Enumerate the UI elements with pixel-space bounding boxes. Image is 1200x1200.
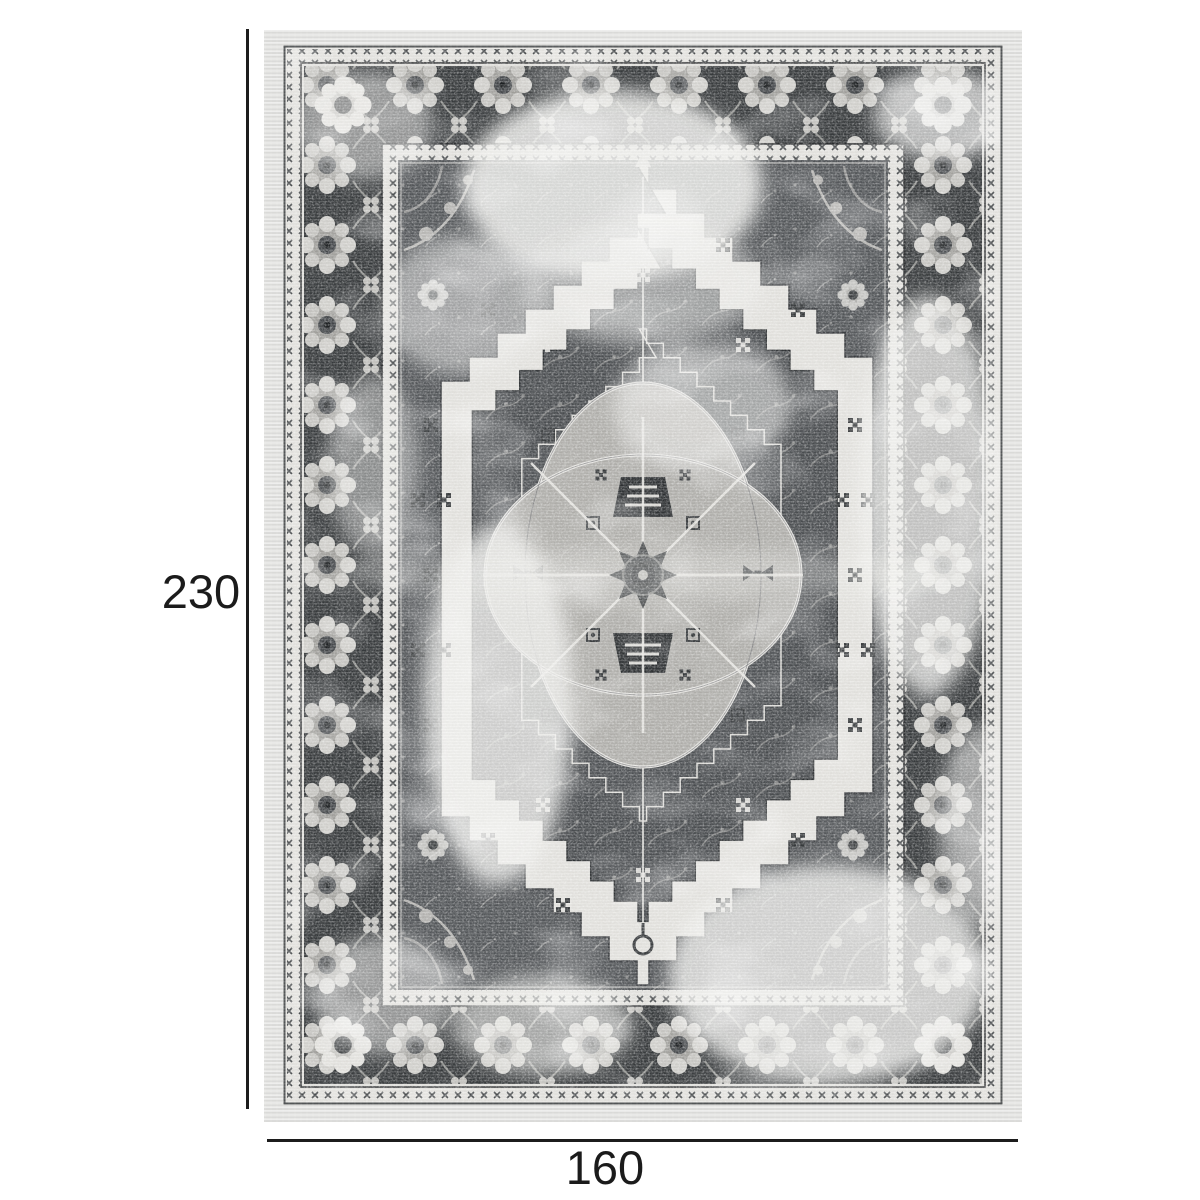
width-dimension-label: 160	[543, 1140, 667, 1196]
height-dimension-label: 230	[146, 564, 256, 620]
page-canvas: 230 160	[0, 0, 1200, 1200]
rug-artwork	[283, 45, 1003, 1105]
rug-image	[264, 30, 1022, 1122]
